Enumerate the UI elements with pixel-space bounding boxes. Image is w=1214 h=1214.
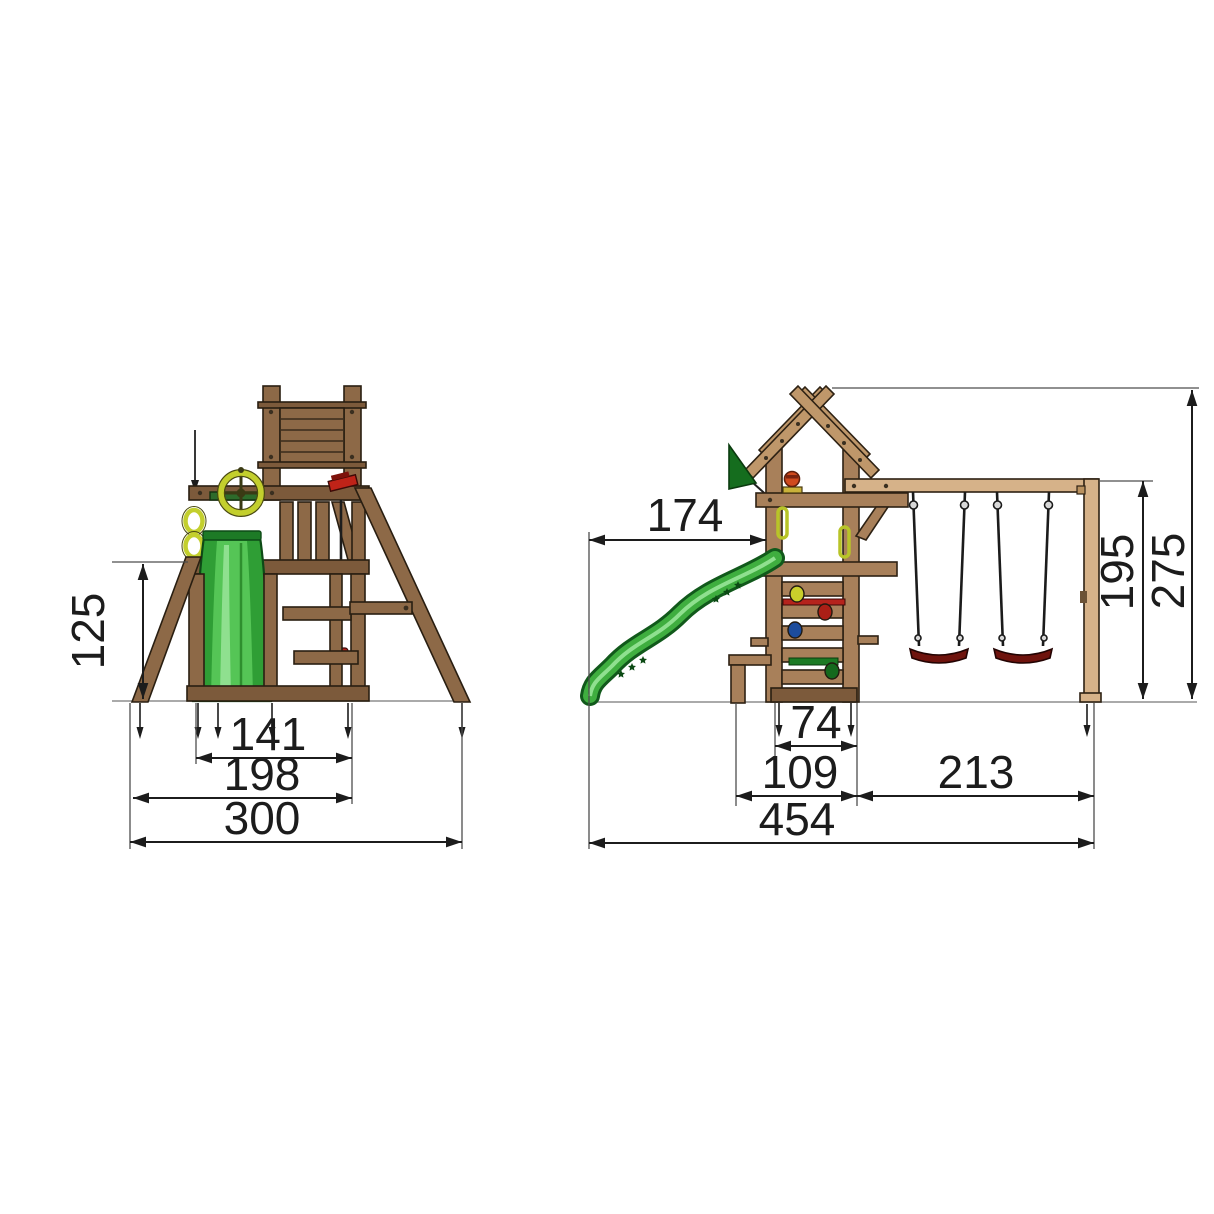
dim-slide-reach: 174 [647, 489, 724, 541]
drawing-canvas: 125 141 198 300 [0, 0, 1214, 1214]
telescope [783, 472, 802, 494]
playset-dimension-drawing: 125 141 198 300 [0, 0, 1214, 1214]
shelf-right [858, 636, 878, 644]
platform-beam-side [756, 493, 908, 507]
dim-total-depth: 454 [759, 793, 836, 845]
anchor-pointer [191, 430, 199, 492]
slide-side [590, 558, 775, 696]
dim-total-height: 275 [1142, 533, 1194, 610]
front-view: 125 141 198 300 [62, 386, 470, 849]
swing-2 [994, 492, 1053, 663]
side-view: 174 195 275 74 109 213 454 [585, 386, 1199, 849]
swing-seat [994, 649, 1052, 663]
dim-swing-bay-depth: 213 [938, 746, 1015, 798]
hold-yellow [790, 586, 804, 602]
step-upper [283, 607, 351, 620]
dim-tower-base-depth: 109 [762, 746, 839, 798]
step-lower [294, 651, 358, 664]
hold-red [818, 604, 832, 620]
shelf-left [751, 638, 768, 646]
leg-brace [350, 602, 412, 614]
hold-green [825, 663, 839, 679]
dim-swing-beam-height: 195 [1091, 534, 1143, 611]
beam-brace [856, 507, 888, 540]
dim-total-width: 300 [224, 792, 301, 844]
hold-blue [788, 622, 802, 638]
railing [280, 502, 365, 564]
ground-sill [187, 686, 369, 701]
roof [745, 386, 879, 478]
swing-beam [845, 479, 1098, 492]
dim-platform-height: 125 [62, 593, 114, 670]
swing-1 [910, 492, 969, 663]
bench [729, 655, 771, 703]
dim-tower-depth: 74 [790, 696, 841, 748]
steering-wheel [210, 467, 264, 516]
right-leg [355, 488, 470, 702]
swing-seat [910, 649, 968, 663]
